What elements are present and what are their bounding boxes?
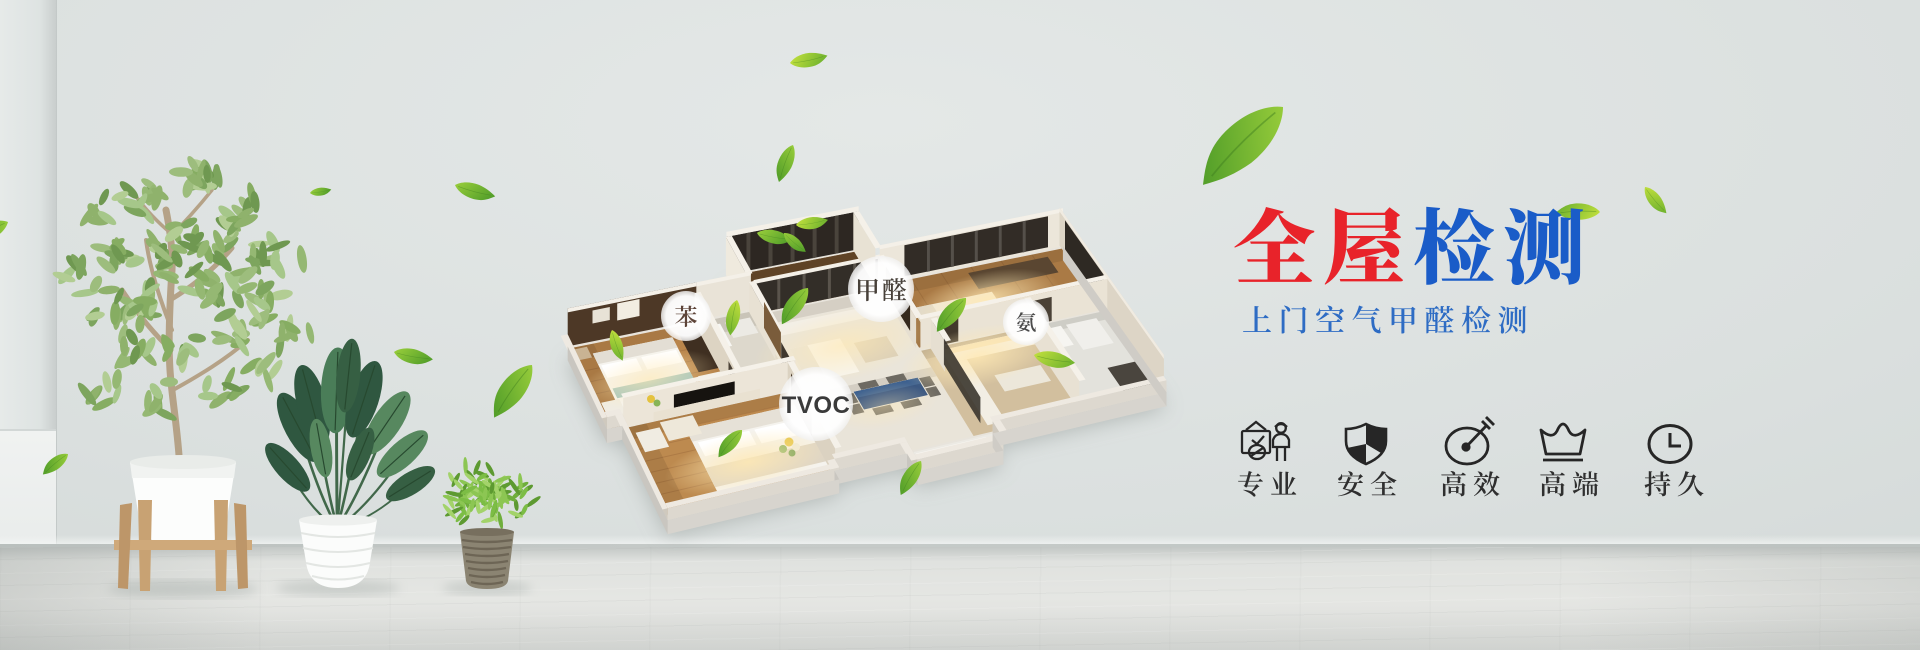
svg-text:TVOC: TVOC (782, 392, 851, 419)
